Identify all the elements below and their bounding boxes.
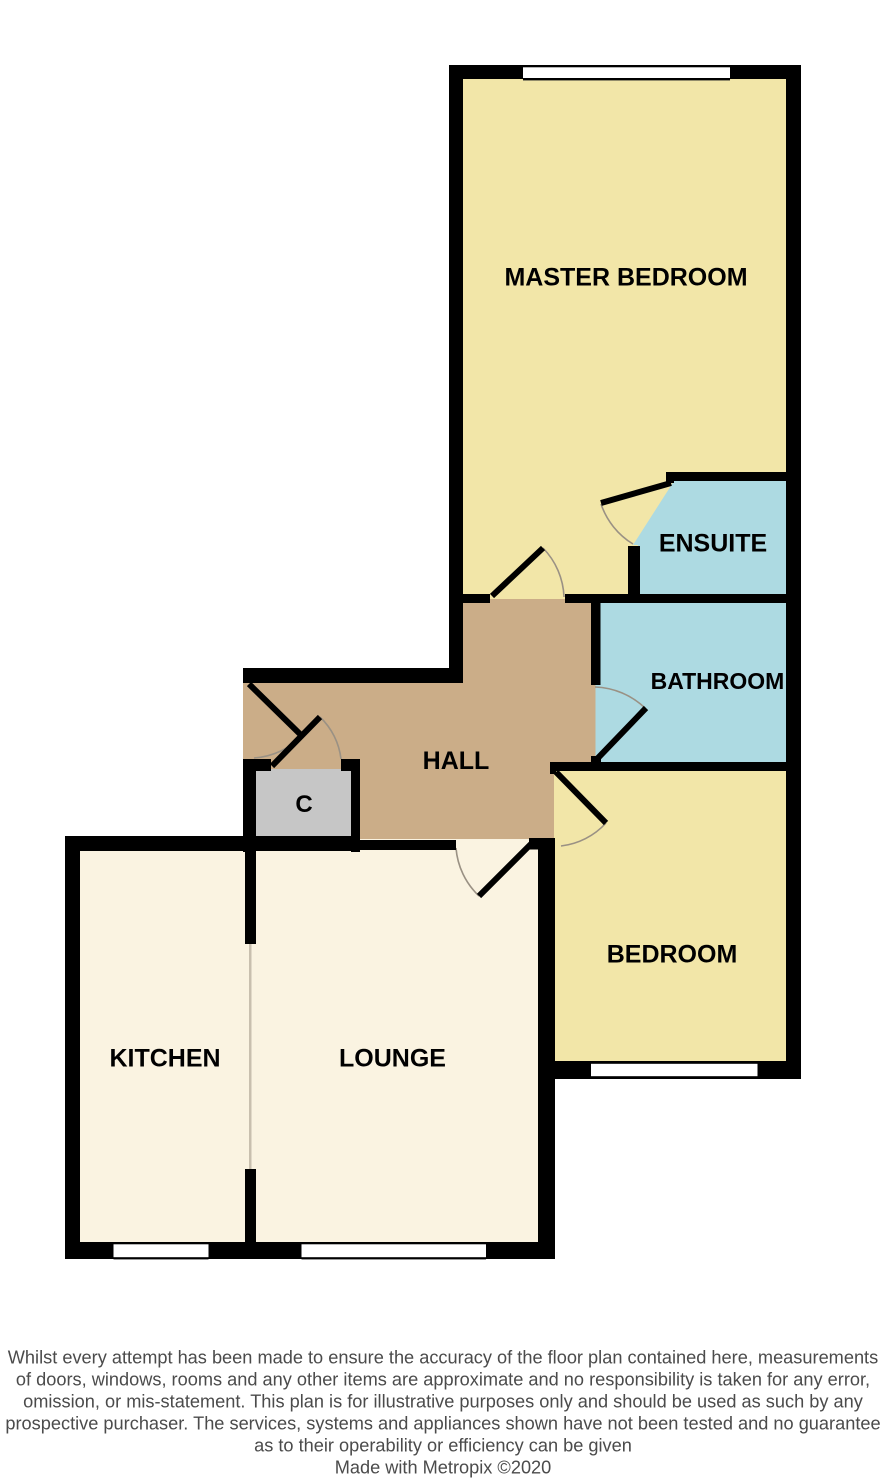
svg-text:KITCHEN: KITCHEN: [109, 1045, 220, 1073]
svg-text:LOUNGE: LOUNGE: [339, 1045, 446, 1073]
svg-text:HALL: HALL: [423, 747, 490, 775]
svg-text:Made with Metropix ©2020: Made with Metropix ©2020: [335, 1458, 552, 1478]
svg-text:prospective purchaser. The ser: prospective purchaser. The services, sys…: [5, 1414, 880, 1434]
svg-text:C: C: [295, 791, 312, 818]
svg-text:Whilst every attempt has been: Whilst every attempt has been made to en…: [8, 1348, 878, 1368]
svg-text:ENSUITE: ENSUITE: [659, 530, 767, 558]
svg-text:BATHROOM: BATHROOM: [651, 668, 785, 694]
svg-text:omission, or mis-statement. Th: omission, or mis-statement. This plan is…: [23, 1392, 864, 1412]
svg-text:as to their operability or eff: as to their operability or efficiency ca…: [254, 1436, 632, 1456]
svg-text:BEDROOM: BEDROOM: [607, 941, 738, 969]
svg-text:of doors, windows, rooms and a: of doors, windows, rooms and any other i…: [16, 1370, 870, 1390]
svg-text:MASTER BEDROOM: MASTER BEDROOM: [504, 264, 747, 292]
